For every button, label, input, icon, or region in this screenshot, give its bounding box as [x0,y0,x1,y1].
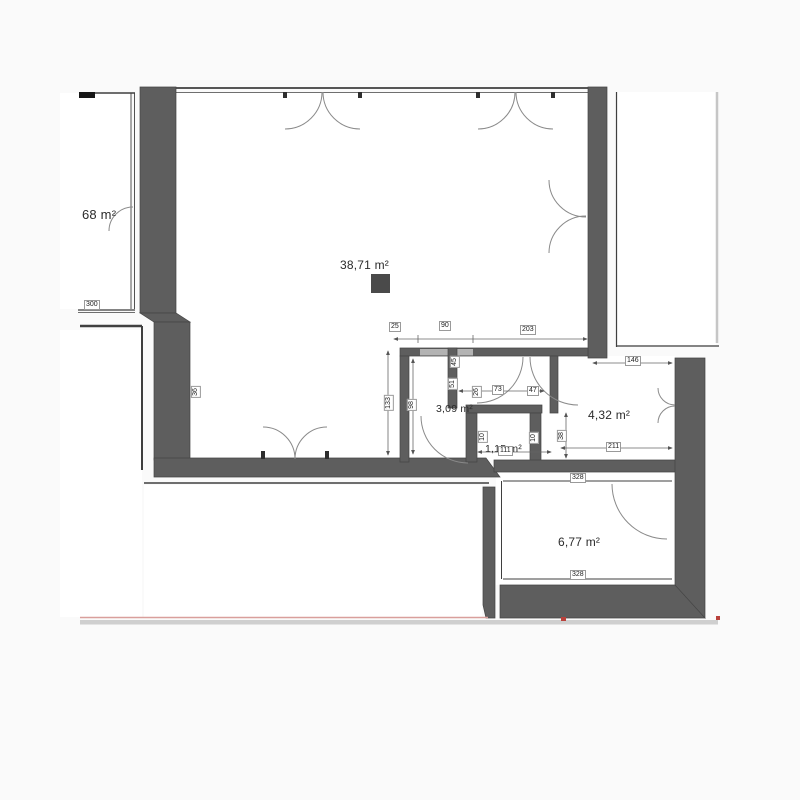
room-label-living[interactable]: 38,71 m² [340,258,389,272]
dimbox-26: 26 [472,386,482,398]
dimbox-38: 38 [557,430,567,442]
floor-lowleft-b [144,485,482,617]
floor-plan-canvas: 68 m² 38,71 m² 3,09 m² 1,15 m² 4,32 m² 6… [0,0,800,800]
hinge-nub [358,92,362,98]
red-marker-dot-right [716,616,720,620]
utility-block [79,92,95,98]
plan-drawing [0,0,800,800]
dimbox-47: 47 [527,386,539,396]
room-label-bath[interactable]: 3,09 m² [436,403,473,415]
wall-right-outer [675,358,705,618]
dimbox-111: 111 [498,446,513,456]
dimbox-146: 146 [625,356,641,366]
wall-lowleft-divider [483,487,495,618]
dimbox-90: 90 [439,321,451,331]
floor-living-upper [176,92,588,348]
dimbox-328-top: 328 [570,473,586,483]
wall-opening-lintel [420,349,473,356]
floor-left-unit [60,93,131,309]
dimbox-203: 203 [520,325,536,335]
slab-edge-band [80,620,718,625]
hinge-nub [476,92,480,98]
wall-mid-bottom [494,460,676,472]
dimbox-133: 133 [384,395,394,411]
hinge-nub [325,451,329,459]
room-label-storage[interactable]: 6,77 m² [558,535,600,549]
room-label-left-unit[interactable]: 68 m² [82,207,116,222]
hinge-nub [283,92,287,98]
hinge-nub [261,451,265,459]
dimbox-73: 73 [492,385,504,395]
hinge-nub [551,92,555,98]
dimbox-25: 25 [389,322,401,332]
room-label-hall[interactable]: 4,32 m² [588,408,630,422]
floor-right-strip [618,92,716,345]
floor-storage [496,472,675,585]
dimbox-300: 300 [84,300,100,310]
dimbox-211: 211 [606,442,621,452]
wall-wc-top [466,405,542,413]
wall-wc-left [466,413,477,462]
wall-living-bottom [154,458,500,477]
dimbox-10-right: 10 [529,432,539,444]
wall-left-lower [154,322,190,460]
dimbox-45: 45 [450,356,460,368]
dimbox-51: 51 [448,378,458,390]
dimbox-36: 36 [191,386,201,398]
wall-left-upper [140,87,176,313]
dimbox-10-left: 10 [478,431,488,443]
wall-bottom-outer [500,585,705,618]
dimbox-328-bottom: 328 [570,570,586,580]
wall-living-right [588,87,607,358]
area-marker-living[interactable] [371,274,390,293]
floor-living-lower [190,313,400,458]
red-marker-dot [561,617,566,621]
wall-hall-divider [550,356,558,413]
floor-lowleft-a [60,330,142,617]
dimbox-98: 98 [407,399,417,411]
